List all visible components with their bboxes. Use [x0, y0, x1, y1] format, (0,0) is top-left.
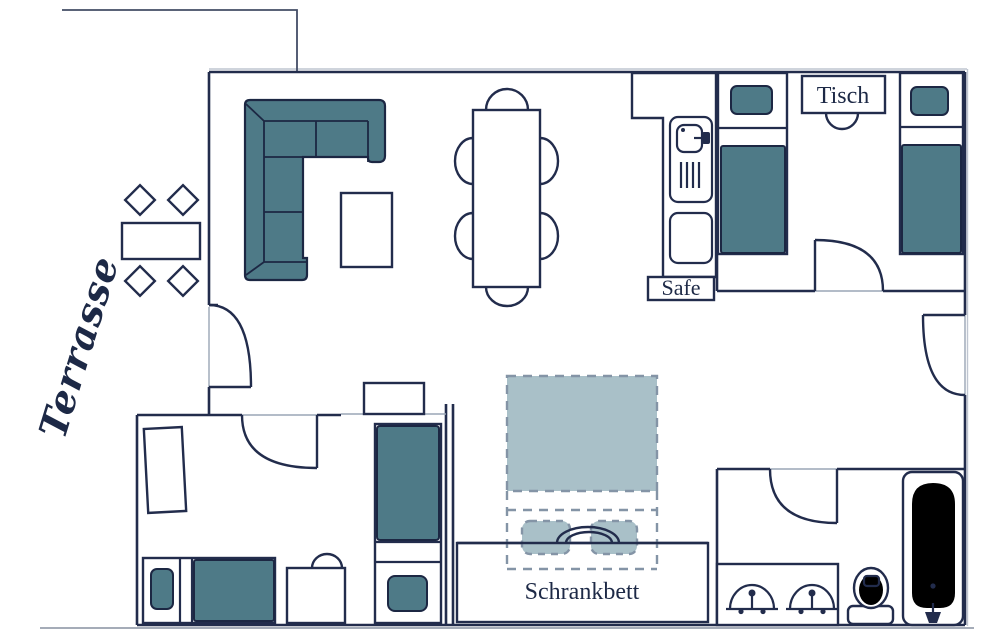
kitchen: Safe — [632, 73, 716, 300]
safe-label: Safe — [661, 275, 700, 300]
desk — [287, 568, 345, 623]
dining-chair — [540, 213, 558, 259]
dining-table — [473, 110, 540, 287]
terrace-chair — [168, 185, 198, 215]
mattress — [194, 560, 274, 621]
basin-foot — [820, 609, 825, 614]
single-bed-horizontal — [143, 558, 275, 623]
bathtub-drain — [930, 583, 935, 588]
terrace-table — [122, 223, 200, 259]
door-swing-arc — [770, 469, 837, 523]
single-bed-right — [900, 73, 963, 254]
dining-chair — [540, 138, 558, 184]
bedside-chair — [826, 113, 858, 129]
living-room — [245, 89, 558, 414]
desk-chair — [312, 554, 342, 568]
faucet-knob — [749, 590, 756, 597]
wardrobe — [144, 427, 186, 513]
coffee-table — [341, 193, 392, 267]
pillow — [388, 576, 427, 611]
wall-bed-pillow — [591, 521, 637, 554]
terrace-chair — [125, 266, 155, 296]
wall-shelf — [364, 383, 424, 414]
bedroom-bottom — [143, 424, 441, 623]
bedroom-top: Tisch — [718, 73, 963, 254]
single-bed-vertical — [375, 424, 441, 623]
basin-foot — [798, 609, 803, 614]
basin-foot — [760, 609, 765, 614]
faucet-icon — [702, 132, 710, 144]
dining-chair — [455, 213, 473, 259]
door-swing-arc — [242, 415, 317, 468]
faucet-knob — [809, 590, 816, 597]
door-swing-arc — [923, 315, 965, 395]
bathtub — [903, 472, 963, 625]
mattress — [721, 146, 785, 253]
dining-set — [455, 89, 558, 306]
pillow — [731, 86, 772, 114]
door-bedroom-bottom — [242, 415, 317, 468]
pillow — [151, 569, 173, 609]
dining-chair — [486, 287, 528, 306]
bathroom — [717, 472, 963, 625]
terrace-chair — [125, 185, 155, 215]
floor-plan-canvas: Terrasse — [0, 0, 1000, 644]
toilet — [848, 568, 893, 624]
dining-chair — [486, 89, 528, 110]
pillow — [911, 87, 948, 115]
door-terrace — [209, 305, 251, 387]
bedside-table-label: Tisch — [817, 83, 869, 109]
dining-chair — [455, 138, 473, 184]
door-swing-arc — [209, 305, 251, 387]
wall-bed-label: Schrankbett — [525, 579, 640, 605]
mattress — [377, 426, 439, 540]
door-entrance — [923, 315, 965, 395]
terrace-label: Terrasse — [30, 251, 128, 444]
terrace-chair — [168, 266, 198, 296]
door-bathroom — [770, 469, 837, 523]
basin-foot — [738, 609, 743, 614]
single-bed-left — [718, 73, 787, 254]
kitchen-counter — [632, 73, 716, 277]
bathtub-basin — [912, 483, 955, 608]
mattress — [902, 145, 961, 253]
door-bedroom-top — [815, 240, 883, 291]
door-swing-arc — [815, 240, 883, 291]
terrace-boundary — [62, 10, 297, 72]
wall-bed-niche: Schrankbett — [457, 376, 708, 622]
sink-drain — [681, 128, 685, 132]
wall-bed-pillow — [522, 521, 570, 554]
wall-bed-folded-out — [507, 376, 657, 491]
